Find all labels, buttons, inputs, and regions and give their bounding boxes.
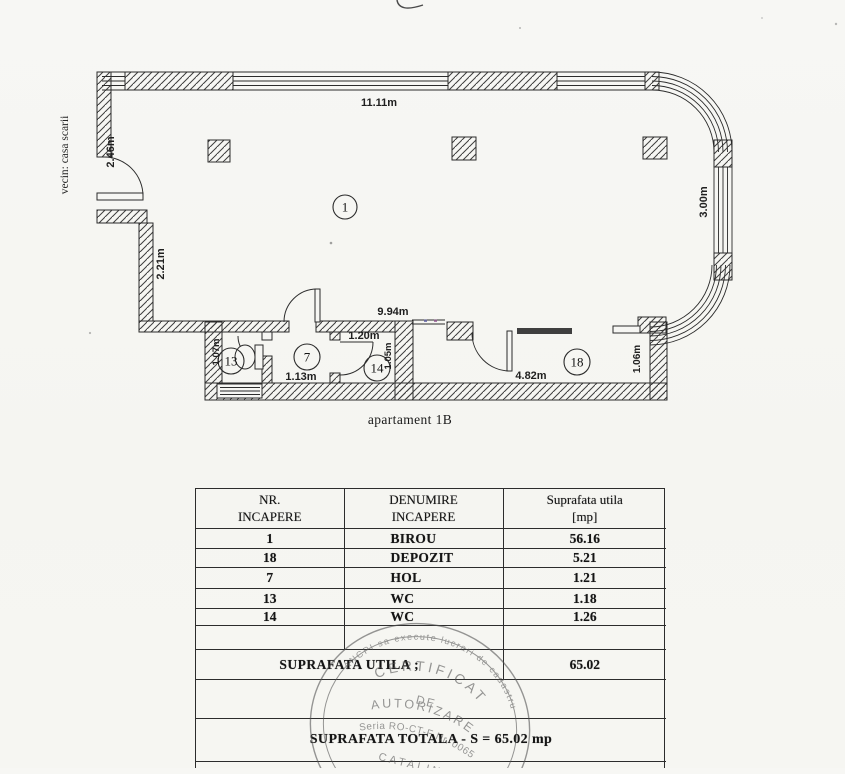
table-row: 13 WC 1.18 [196,589,666,609]
dim-wc14-width: 1.05m [383,343,394,370]
suprafata-totala-label: SUPRAFATA TOTALA - S = 65.02 mp [196,719,666,762]
suprafata-utila-label: SUPRAFATA UTILA ; [196,650,503,680]
dim-left-entry: 2.46m [105,136,117,167]
header-denumire-incapere: DENUMIREINCAPERE [344,489,503,529]
floor-plan: 1 7 13 14 18 11.11m 9.94m 1.20m 1.13m 4.… [0,0,845,470]
room-number-depozit: 18 [571,355,584,370]
cell-name: WC [344,609,503,626]
dim-wc13-width: 1.07m [211,339,222,366]
cell-area: 56.16 [503,529,666,549]
header-suprafata-utila: Suprafata utila[mp] [503,489,666,529]
cell-name: HOL [344,568,503,589]
cell-nr: 1 [196,529,344,549]
plan-caption: apartament 1B [368,412,452,427]
area-table-grid: NR.INCAPERE DENUMIREINCAPERE Suprafata u… [196,489,666,774]
dim-hol-width: 1.13m [285,371,316,383]
table-row: 18 DEPOZIT 5.21 [196,549,666,568]
area-table: NR.INCAPERE DENUMIREINCAPERE Suprafata u… [195,488,665,768]
neighbor-label: vecin: casa scarii [59,116,71,195]
table-header-row: NR.INCAPERE DENUMIREINCAPERE Suprafata u… [196,489,666,529]
cell-name: BIROU [344,529,503,549]
cell-area: 1.18 [503,589,666,609]
dimension-labels: 11.11m 9.94m 1.20m 1.13m 4.82m 2.46m 2.2… [59,97,710,383]
cell-area: 1.21 [503,568,666,589]
structural-columns [208,137,667,162]
table-row: 1 BIROU 56.16 [196,529,666,549]
scanned-document-page: { "page": { "caption": "apartament 1B", … [0,0,845,768]
cell-name: WC [344,589,503,609]
cell-area: 1.26 [503,609,666,626]
dim-room1-width: 9.94m [377,306,408,318]
suprafata-utila-row: SUPRAFATA UTILA ; 65.02 [196,650,666,680]
dim-hol-door: 1.20m [348,330,379,342]
cell-nr: 13 [196,589,344,609]
suprafata-utila-value: 65.02 [503,650,666,680]
dim-depozit-width: 4.82m [515,370,546,382]
room-number-wc14: 14 [371,361,385,376]
wall-caps [97,193,640,340]
room-number-birou: 1 [342,200,349,215]
cell-area: 5.21 [503,549,666,568]
cell-nr: 7 [196,568,344,589]
cell-name: DEPOZIT [344,549,503,568]
header-nr-incapere: NR.INCAPERE [196,489,344,529]
table-row: 14 WC 1.26 [196,609,666,626]
table-row: 7 HOL 1.21 [196,568,666,589]
dim-right-side: 3.00m [698,186,710,217]
room-number-wc13: 13 [225,354,238,369]
dim-depozit-depth: 1.06m [632,345,643,373]
toilet-symbol [235,345,263,369]
dim-left-lower: 2.21m [155,248,167,279]
spacer-row [196,680,666,719]
room-number-hol: 7 [304,350,311,365]
cell-nr: 14 [196,609,344,626]
suprafata-totala-row: SUPRAFATA TOTALA - S = 65.02 mp [196,719,666,762]
spacer-row [196,626,666,650]
cell-nr: 18 [196,549,344,568]
counter-bar [517,328,572,334]
dim-top-width: 11.11m [361,97,397,109]
